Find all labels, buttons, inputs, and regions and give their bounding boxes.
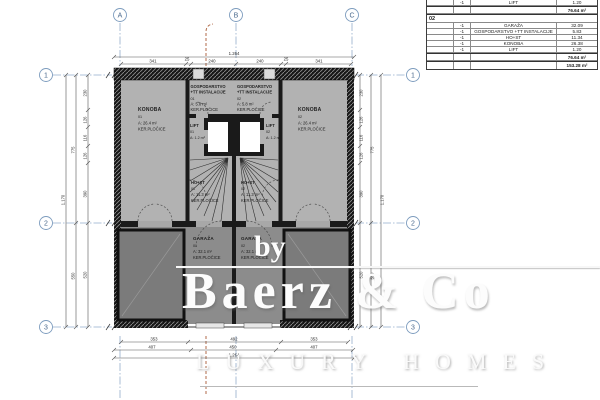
table-cell-empty — [454, 62, 471, 69]
dim-bottom-seg: 492 — [230, 337, 238, 342]
watermark-brand: Baerz & Co — [182, 262, 495, 321]
table-cell-room: KONOBA — [471, 41, 557, 46]
dim-left-seg: 520 — [83, 271, 88, 279]
room-area: A: 1.2 m² — [190, 136, 206, 140]
door-gap-garage-right — [246, 221, 272, 227]
room-finish: KER.PLOČICE — [191, 107, 219, 112]
top-door-left — [193, 69, 204, 79]
table-cell-room: GOSPODARSTVO +TT INSTALACIJE — [471, 29, 557, 34]
table-cell-empty — [471, 62, 557, 69]
table-cell-empty — [427, 62, 454, 69]
room-name: KONOBA — [138, 107, 162, 113]
table-total-value: 153.28 m² — [557, 62, 597, 69]
table-cell-room: LIFT — [471, 47, 557, 52]
room-finish: KER.PLOČICE — [191, 198, 219, 203]
dim-left-seg: 116 — [83, 134, 88, 141]
room-num: 02 — [241, 244, 245, 248]
door-gap-konoba-right — [296, 221, 330, 227]
watermark-tagline: LUXURY HOMES — [196, 349, 560, 375]
table-cell-area: 26.38 — [557, 41, 597, 46]
room-finish: KER.PLOČICE — [193, 255, 221, 260]
lift-cab-left — [208, 122, 228, 152]
dim-right-total: 1.170 — [380, 194, 385, 205]
dim-right-seg: 230 — [359, 89, 364, 97]
room-name: HO+ST — [191, 180, 205, 185]
table-subtotal-row: 76.64 m² — [427, 6, 597, 14]
garage-door-right — [244, 323, 272, 328]
table-cell-room: HO+ST — [471, 35, 557, 40]
table-subtotal-value: 76.64 m² — [557, 7, 597, 13]
watermark-by: by — [254, 230, 286, 264]
table-cell-area: 1.20 — [557, 47, 597, 52]
dim-top-seg: 341 — [315, 59, 323, 64]
room-name2: +TT INSTALACIJE — [237, 90, 272, 95]
table-cell-empty — [471, 54, 557, 60]
room-name: KONOBA — [298, 107, 322, 113]
grid-label-1-left: 1 — [44, 73, 48, 80]
door-gap-gosp-left — [196, 114, 208, 118]
dim-left-mid: 550 — [71, 272, 76, 280]
room-area: A: 32.1 m² — [193, 249, 213, 254]
dim-right-seg: 390 — [359, 190, 364, 198]
table-cell-level: -1 — [454, 0, 471, 5]
room-num: 01 — [138, 115, 142, 119]
grid-label-2-left: 2 — [44, 221, 48, 228]
table-cell-level: -1 — [454, 29, 471, 34]
room-name: HO+ST — [241, 180, 255, 185]
dim-left-seg: 390 — [83, 190, 88, 198]
room-name: LIFT — [190, 123, 199, 128]
room-name: GOSPODARSTVO — [237, 84, 273, 89]
dim-top-seg: 341 — [149, 59, 157, 64]
area-table: -1 LIFT 1.20 76.64 m² 02 -1 GARAŽA 32.09… — [426, 0, 598, 70]
watermark-divider-bottom — [200, 386, 478, 387]
room-finish: KER.PLOČICE — [298, 127, 326, 132]
room-name: LIFT — [266, 123, 275, 128]
dim-left-seg: 126 — [83, 116, 88, 124]
table-cell-room: LIFT — [471, 0, 557, 5]
room-area: A: 5.8 m² — [191, 102, 208, 107]
grid-label-A: A — [118, 13, 123, 20]
room-finish: KER.PLOČICE — [241, 198, 269, 203]
dim-right-seg: 126 — [359, 116, 364, 124]
room-num: 02 — [241, 187, 245, 191]
room-finish: KER.PLOČICE — [237, 107, 265, 112]
room-num: 01 — [191, 97, 195, 101]
left-dimension-labels: 1.170 775 550 230 126 116 126 390 520 — [61, 89, 88, 280]
table-cell-level: -1 — [454, 23, 471, 28]
table-subtotal-row: 76.64 m² — [427, 53, 597, 61]
door-gap-gosp-right — [260, 114, 272, 118]
room-num: 01 — [190, 130, 194, 134]
grid-label-C: C — [349, 13, 354, 20]
dim-right-mid: 775 — [370, 146, 375, 154]
room-num: 01 — [193, 244, 197, 248]
room-name: GARAŽA — [193, 234, 214, 241]
table-cell-empty — [427, 54, 454, 60]
table-cell-empty — [427, 23, 454, 28]
dim-left-seg: 126 — [83, 152, 88, 160]
room-num: 02 — [298, 115, 302, 119]
table-cell-empty — [427, 41, 454, 46]
wall-konoba-right — [279, 80, 283, 221]
dim-top-seg: 25 — [185, 57, 190, 62]
lift-door-right — [260, 130, 264, 144]
room-area: A: 11.3 m² — [241, 192, 260, 197]
table-subtotal-value: 76.64 m² — [557, 54, 597, 60]
table-cell-area: 11.34 — [557, 35, 597, 40]
table-cell-empty — [427, 35, 454, 40]
top-door-right — [264, 69, 275, 79]
dim-bottom-seg: 353 — [150, 337, 158, 342]
room-num: 02 — [237, 97, 241, 101]
table-total-row: 153.28 m² — [427, 61, 597, 69]
door-gap-garage-left — [196, 221, 222, 227]
room-name2: +TT INSTALACIJE — [191, 90, 226, 95]
table-cell-empty — [427, 47, 454, 52]
grid-label-B: B — [234, 13, 239, 20]
wall-konoba-left — [186, 80, 190, 221]
dim-top-seg: 240 — [208, 59, 216, 64]
dim-bottom-seg: 353 — [310, 337, 318, 342]
table-cell-empty — [427, 0, 454, 5]
room-area: A: 26.4 m² — [138, 121, 158, 126]
door-gap-konoba-left — [138, 221, 172, 227]
room-finish: KER.PLOČICE — [138, 127, 166, 132]
room-num: 02 — [266, 130, 270, 134]
table-section-row: 02 — [427, 14, 597, 23]
room-area: A: 26.4 m² — [298, 121, 318, 126]
room-area: A: 11.3 m² — [191, 192, 210, 197]
dim-bottom-seg: 407 — [148, 345, 156, 350]
room-area: A: 1.2 m² — [266, 136, 282, 140]
garage-door-left — [196, 323, 224, 328]
top-wall — [114, 68, 354, 80]
grid-label-2-right: 2 — [411, 221, 415, 228]
room-num: 01 — [191, 187, 195, 191]
table-cell-area: 32.09 — [557, 23, 597, 28]
right-dimension-labels: 1.170 775 550 230 126 116 126 390 520 — [359, 89, 385, 280]
dim-right-seg: 116 — [359, 134, 364, 141]
table-cell-level: -1 — [454, 35, 471, 40]
grid-label-1-right: 1 — [411, 73, 415, 80]
grid-label-3-right: 3 — [411, 325, 415, 332]
table-cell-level: -1 — [454, 47, 471, 52]
floor-plan-page: { "colors": { "wall": "#1a1a1a", "room_f… — [0, 0, 600, 400]
lift-cab-right — [240, 122, 260, 152]
dim-left-mid: 775 — [71, 146, 76, 154]
dim-top-total: 1.264 — [229, 51, 240, 56]
table-cell-area: 5.83 — [557, 29, 597, 34]
wall-gosp-right — [236, 114, 279, 118]
room-area: A: 5.8 m² — [237, 102, 254, 107]
table-cell-empty — [427, 7, 454, 13]
dim-left-seg: 230 — [83, 89, 88, 97]
dim-left-total: 1.170 — [61, 194, 66, 205]
table-cell-empty — [427, 29, 454, 34]
dim-right-seg: 126 — [359, 152, 364, 160]
left-dimensions — [64, 73, 90, 329]
dim-top-seg: 25 — [284, 57, 289, 62]
grid-label-3-left: 3 — [44, 325, 48, 332]
table-cell-empty — [471, 7, 557, 13]
room-name: GOSPODARSTVO — [191, 84, 227, 89]
table-section-label: 02 — [427, 15, 597, 22]
table-cell-area: 1.20 — [557, 0, 597, 5]
wall-gosp-left — [189, 114, 232, 118]
table-cell-level: -1 — [454, 41, 471, 46]
table-cell-empty — [454, 54, 471, 60]
table-cell-empty — [454, 7, 471, 13]
dim-top-seg: 240 — [256, 59, 264, 64]
table-cell-room: GARAŽA — [471, 23, 557, 28]
